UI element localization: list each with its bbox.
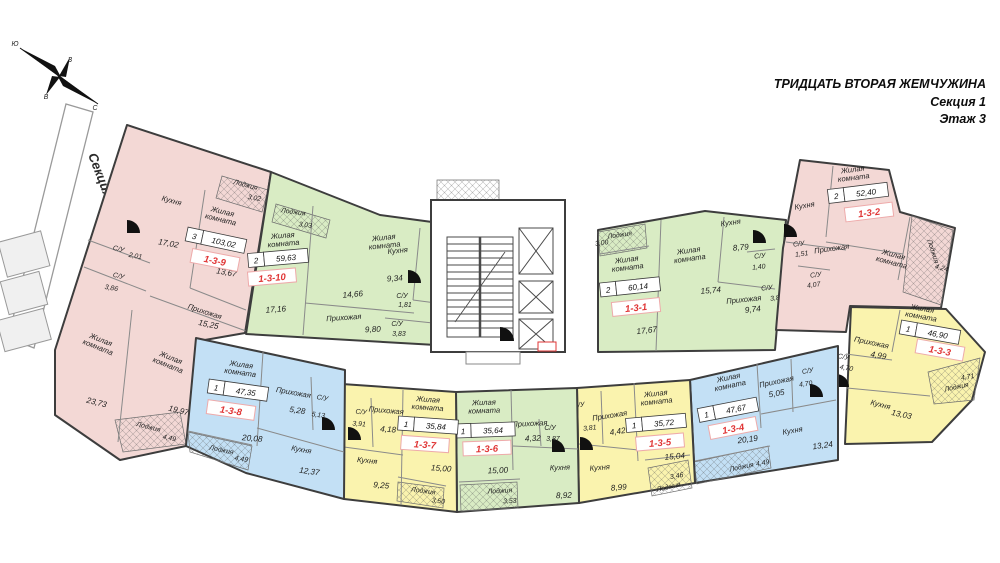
room-name-label: С/У [396,293,408,300]
red-marker [538,342,556,351]
compass-letter-south: Ю [11,41,18,48]
compass-letter-west: З [68,57,73,64]
title-block: ТРИДЦАТЬ ВТОРАЯ ЖЕМЧУЖИНА Секция 1 Этаж … [774,77,986,126]
room-name-label: Жилаякомната [411,394,444,413]
room-name-label: С/У [355,409,367,417]
core-outline [431,200,565,352]
room-area-label: 8,92 [556,491,573,501]
room-area-label: 14,66 [342,289,364,300]
room-area-label: 3,53 [503,498,517,506]
room-area-label: 9,80 [365,325,382,335]
total-area: 59,63 [276,253,297,264]
apartment-1-3-8[interactable]: Жилаякомната 20,08 Прихожая 5,28 С/У 5,1… [186,338,345,499]
room-area-label: 15,00 [488,466,509,476]
room-name-label: Прихожая [512,418,548,429]
room-area-label: 8,99 [610,482,627,492]
compass-cross-needle [46,76,60,95]
room-area-label: 20,08 [241,433,264,444]
unit-id: 1-3-7 [413,439,437,452]
total-area: 35,72 [654,418,675,429]
room-area-label: 15,74 [700,285,722,296]
unit-id: 1-3-6 [476,444,499,456]
total-area: 35,84 [426,421,447,431]
rooms-count: 1 [461,427,466,436]
room-area-label: 3,81 [583,424,597,432]
room-area-label: 4,70 [839,364,854,373]
room-name-label: Кухня [589,462,610,473]
unit-info-badge: 1 35,64 [455,422,515,438]
apartment-1-3-1[interactable]: Лоджия 3,00 Жилаякомната 17,67 Жилаякомн… [595,211,786,352]
compass-letter-east: В [44,94,49,101]
compass-letter-north: С [93,105,99,112]
apartment-1-3-3[interactable]: Жилаякомната Прихожая 4,99 С/У 4,70 Кухн… [836,301,985,444]
room-area-label: 15,00 [431,463,453,473]
room-area-label: 9,34 [387,273,404,283]
rooms-count: 1 [403,420,408,429]
total-area: 35,64 [483,426,504,436]
floor-plan-canvas: Секция 2 Ю С З В ТРИДЦАТЬ ВТОРАЯ ЖЕМЧУЖИ… [0,0,1000,563]
loggia-hatch [903,216,953,305]
apartment-1-3-10[interactable]: Лоджия 3,03 Жилаякомната 17,16 Жилаякомн… [246,172,436,345]
room-area-label: 3,87 [546,436,561,443]
floor-subtitle: Этаж 3 [939,112,986,126]
room-area-label: 1,40 [752,263,766,271]
room-name-label: С/У [754,252,767,260]
entrance-step [466,352,520,364]
unit-id: 1-3-5 [649,437,673,450]
compass-rose: Ю С З В [11,41,98,112]
room-name-label: С/У [391,321,403,328]
room-area-label: 17,16 [265,304,287,314]
apartment-1-3-6[interactable]: Жилаякомната 15,00 Прихожая 4,32 С/У 3,8… [455,388,579,512]
room-area-label: 4,32 [525,434,542,444]
room-name-label: С/У [544,425,556,432]
floor-plan-page: Секция 2 Ю С З В ТРИДЦАТЬ ВТОРАЯ ЖЕМЧУЖИ… [0,0,1000,563]
room-area-label: 4,18 [380,424,397,434]
apartment-1-3-4[interactable]: Жилаякомната 20,19 Прихожая 5,05 С/У 4,7… [690,346,838,484]
apartment-1-3-7[interactable]: Жилаякомната 15,00 Прихожая 4,18 С/У 3,9… [342,384,458,512]
room-area-label: 3,91 [352,421,366,429]
room-area-label: 9,25 [373,480,390,490]
room-area-label: 9,74 [744,304,761,315]
balcony-hatch [437,180,499,200]
unit-id-badge[interactable]: 1-3-7 [401,435,450,452]
unit-id: 1-3-1 [625,302,648,315]
room-name-label: С/У [761,284,774,292]
room-area-label: 8,79 [732,242,749,252]
room-name-label: Лоджия [486,486,512,495]
section2-shaft [0,308,51,351]
room-name-label: Жилаякомната [468,397,500,415]
section-subtitle: Секция 1 [930,95,986,109]
loggia-hatch [460,482,518,511]
room-name-label: С/У [837,353,850,362]
room-area-label: 3,83 [392,331,406,338]
room-area-label: 1,81 [398,302,412,309]
room-name-label: Кухня [550,463,571,473]
rooms-count: 1 [632,421,637,430]
unit-id-badge[interactable]: 1-3-6 [463,440,511,456]
room-area-label: 15,04 [664,451,686,462]
page-title: ТРИДЦАТЬ ВТОРАЯ ЖЕМЧУЖИНА [774,77,986,91]
apartment-1-3-5[interactable]: Жилаякомната 15,04 Прихожая 4,42 С/У 3,8… [573,380,695,503]
